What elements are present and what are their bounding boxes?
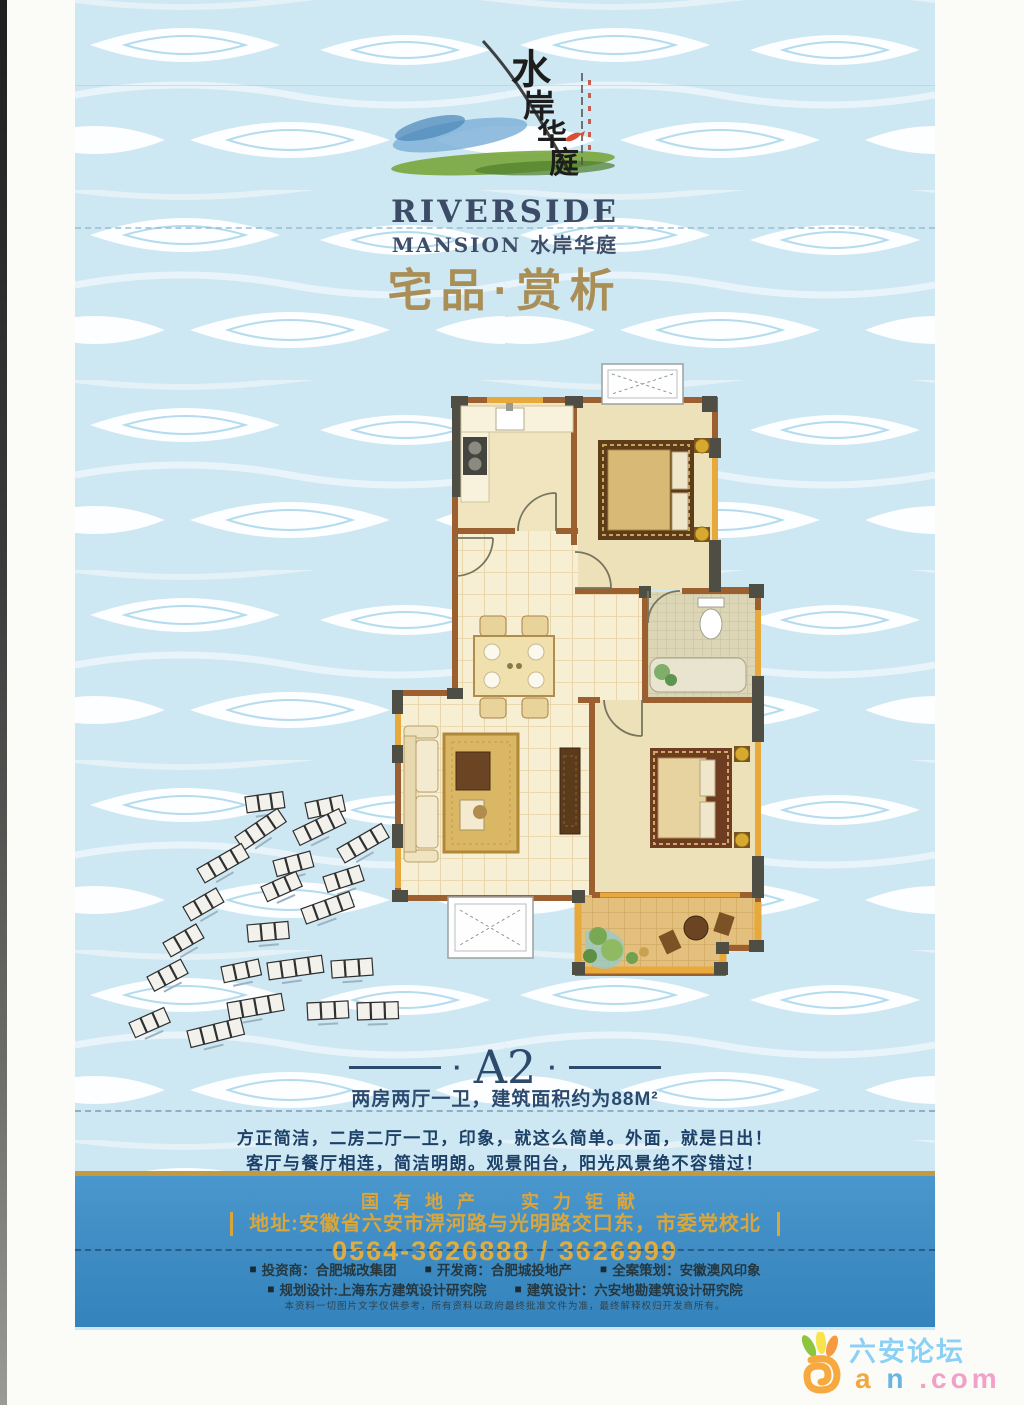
credit-architecture-design: ■ 建筑设计：六安地勘建筑设计研究院 — [515, 1279, 743, 1299]
brand-logo-calligraphy: 水 岸 华 庭 — [385, 35, 635, 185]
calligraphy-char-4: 庭 — [549, 146, 579, 180]
tv-cabinet — [560, 748, 580, 834]
credit-text: 规划设计:上海东方建筑设计研究院 — [280, 1279, 487, 1299]
coffee-table — [456, 752, 490, 790]
credit-planning-design: ■ 规划设计:上海东方建筑设计研究院 — [267, 1279, 486, 1299]
patio-table — [684, 916, 708, 940]
credit-text: 全案策划：安徽澳风印象 — [612, 1259, 761, 1279]
unit-spec: 两房两厅一卫，建筑面积约为88M² — [75, 1084, 935, 1111]
forum-watermark: 六安论坛 a n .com — [795, 1330, 1021, 1404]
footer-address: 地址:安徽省六安市淠河路与光明路交口东，市委党校北 — [230, 1212, 780, 1236]
credit-text: 建筑设计：六安地勘建筑设计研究院 — [527, 1279, 743, 1299]
a2-dot-left: · — [453, 1062, 462, 1072]
ac-platform-bottom — [448, 897, 533, 958]
rug — [444, 734, 518, 852]
brand-name-en: RIVERSIDE — [75, 194, 935, 230]
floor-plan-a2 — [390, 358, 766, 983]
credit-text: 开发商：合肥城投地产 — [437, 1259, 572, 1279]
footer-address-row: 地址:安徽省六安市淠河路与光明路交口东，市委党校北 — [75, 1212, 935, 1236]
footer-headline: 国有地产 实力钜献 — [75, 1188, 935, 1214]
a2-dot-right: · — [548, 1062, 557, 1072]
bedside-lamp — [735, 747, 749, 761]
bedside-lamp — [695, 527, 709, 541]
credits-row-2: ■ 规划设计:上海东方建筑设计研究院 ■ 建筑设计：六安地勘建筑设计研究院 — [75, 1279, 935, 1299]
square-bullet-icon: ■ — [267, 1282, 274, 1296]
disclaimer: 本资料一切图片文字仅供参考，所有资料以政府最终批准文件为准，最终解释权归开发商所… — [75, 1298, 935, 1312]
a2-rule-left — [349, 1066, 441, 1069]
kitchen-sink — [496, 408, 524, 430]
watermark-hand-logo — [795, 1332, 847, 1398]
scanned-flyer-page: 水 岸 华 庭 RIVERSIDE MANSION 水岸华庭 宅品·赏析 — [0, 0, 1024, 1405]
stove — [463, 437, 487, 475]
ac-platform-top — [602, 364, 683, 404]
site-plan-sketch — [95, 775, 410, 1070]
domain-letter-a: a — [855, 1363, 875, 1394]
domain-rest: .com — [919, 1363, 1000, 1394]
section-title: 宅品·赏析 — [75, 254, 935, 319]
credit-text: 投资商：合肥城改集团 — [262, 1259, 397, 1279]
scan-edge-shadow — [0, 0, 7, 1405]
credit-planner: ■ 全案策划：安徽澳风印象 — [600, 1259, 761, 1279]
site-buildings — [129, 792, 399, 1054]
square-bullet-icon: ■ — [249, 1262, 256, 1276]
square-bullet-icon: ■ — [425, 1262, 432, 1276]
footer-band-dash — [75, 1249, 935, 1251]
credits-row-1: ■ 投资商：合肥城改集团 ■ 开发商：合肥城投地产 ■ 全案策划：安徽澳风印象 — [75, 1259, 935, 1279]
toilet-tank — [698, 598, 724, 607]
square-bullet-icon: ■ — [600, 1262, 607, 1276]
toilet — [700, 609, 722, 639]
logo-tagline-marks — [581, 73, 591, 165]
credit-developer: ■ 开发商：合肥城投地产 — [425, 1259, 572, 1279]
watermark-domain: a n .com — [855, 1363, 1001, 1395]
bedside-lamp — [695, 439, 709, 453]
bedside-lamp — [735, 833, 749, 847]
a2-rule-right — [569, 1066, 661, 1069]
square-bullet-icon: ■ — [515, 1282, 522, 1296]
cut-mark-bottom — [75, 1110, 935, 1112]
bedroom2-bed — [598, 438, 710, 542]
credit-investor: ■ 投资商：合肥城改集团 — [249, 1259, 396, 1279]
calligraphy-char-1: 水 — [511, 48, 552, 92]
domain-letter-n: n — [886, 1363, 907, 1394]
slogan-line-1: 方正简洁，二房二厅一卫，印象，就这么简单。外面，就是日出！ — [75, 1124, 935, 1149]
